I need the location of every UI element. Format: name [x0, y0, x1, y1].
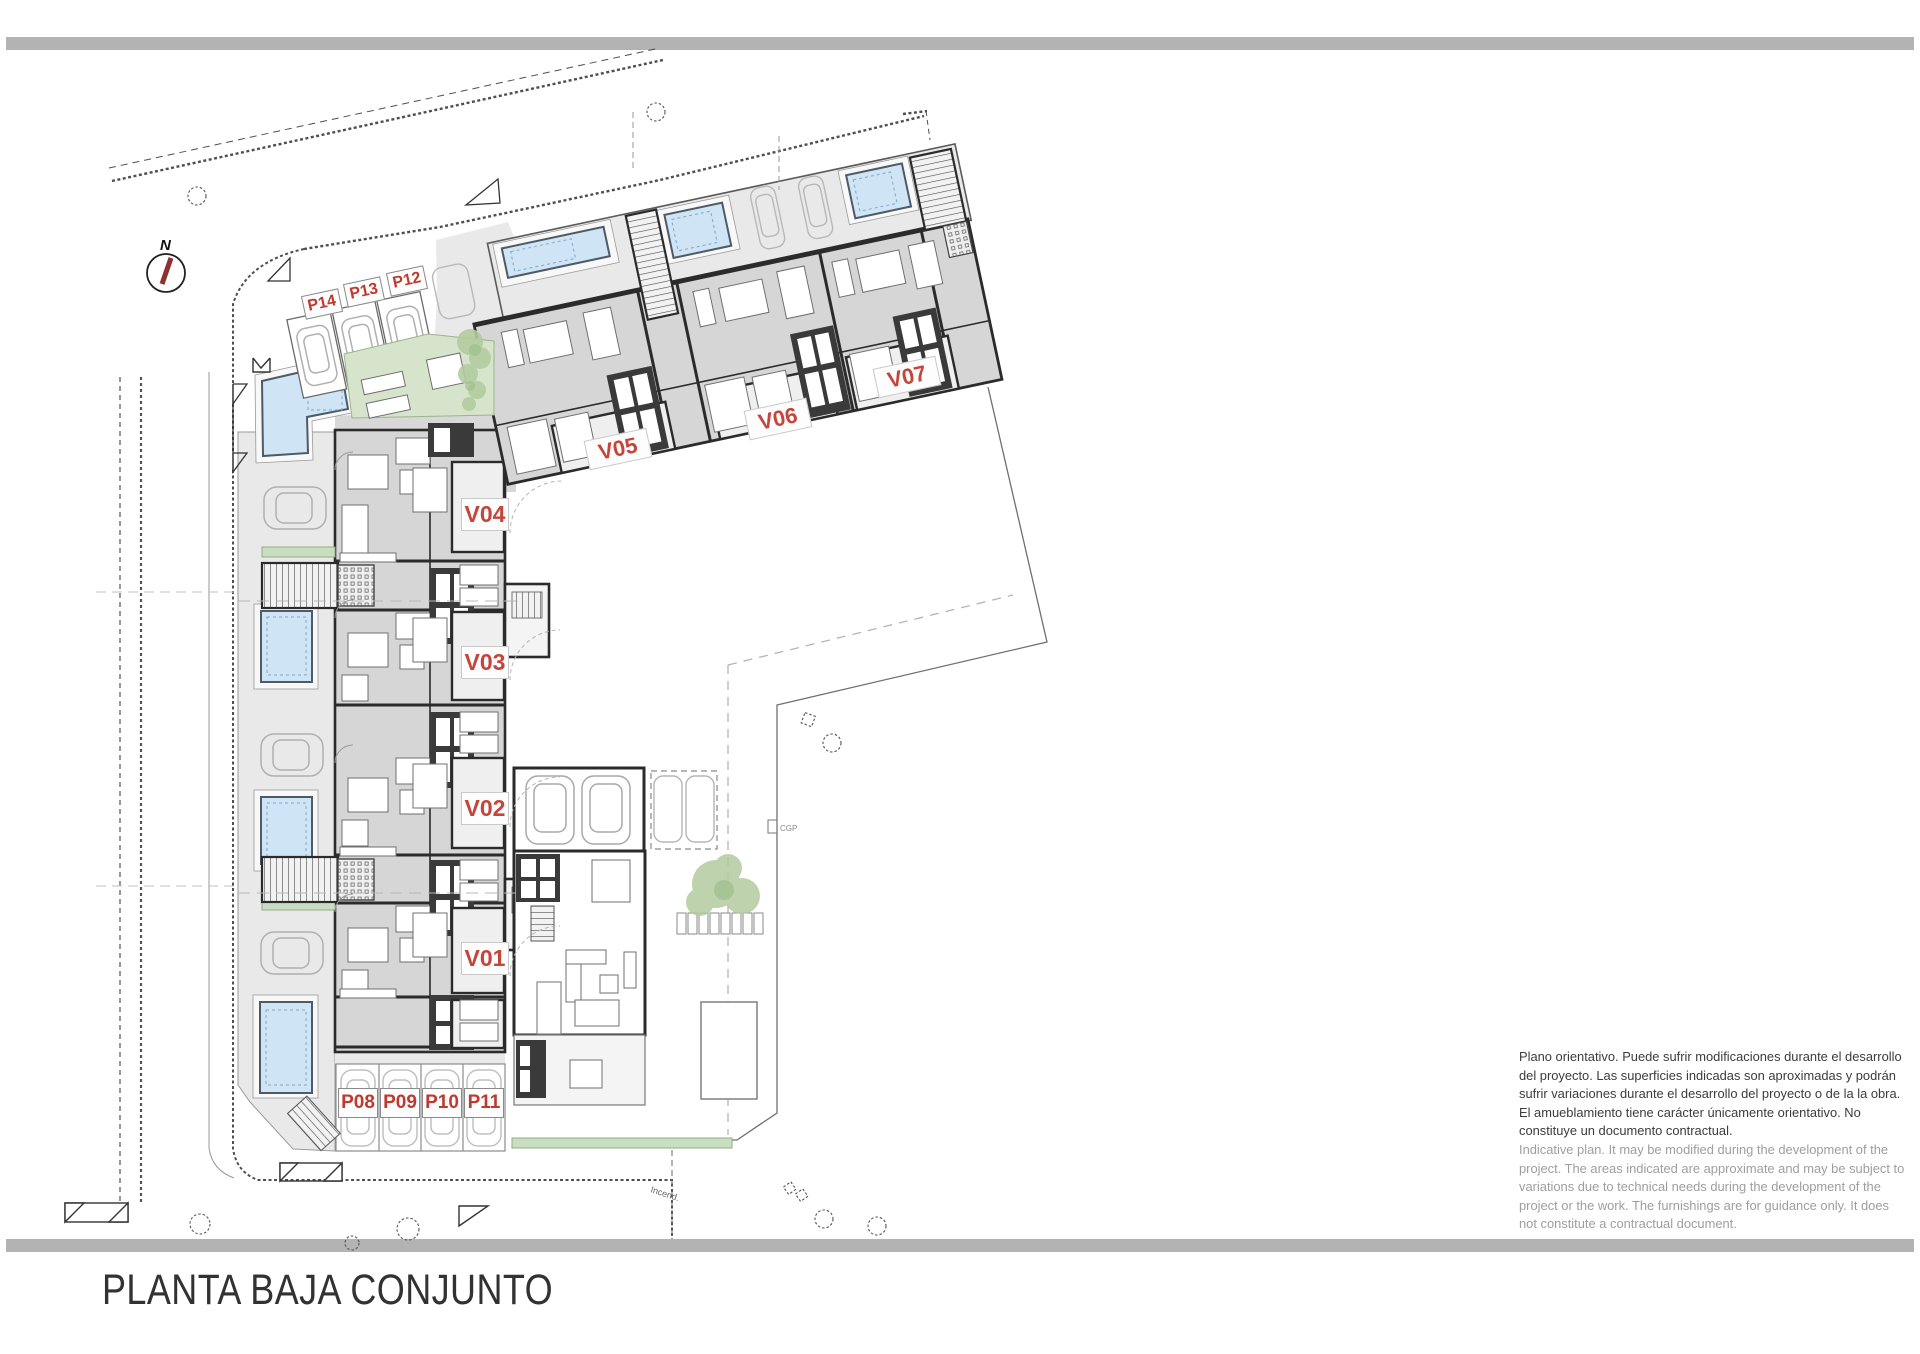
svg-text:CGP: CGP — [780, 824, 797, 833]
svg-text:N: N — [160, 237, 172, 254]
svg-text:Incend.: Incend. — [649, 1184, 680, 1203]
